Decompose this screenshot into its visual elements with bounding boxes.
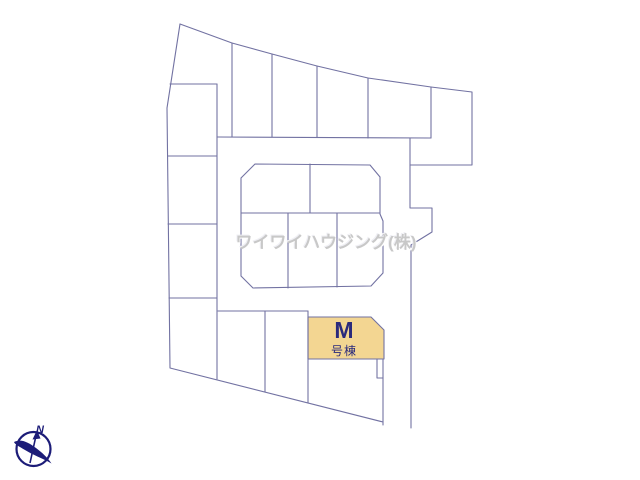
parcel-boundary-line xyxy=(377,359,383,378)
center-block-outline xyxy=(241,164,383,288)
unit-m-parcel xyxy=(308,317,384,359)
parcel-map xyxy=(0,0,640,480)
parcel-boundary-line xyxy=(180,24,472,428)
site-plan: ワイワイハウジング(株) M 号棟 N xyxy=(0,0,640,480)
parcel-boundary-line xyxy=(217,137,431,138)
